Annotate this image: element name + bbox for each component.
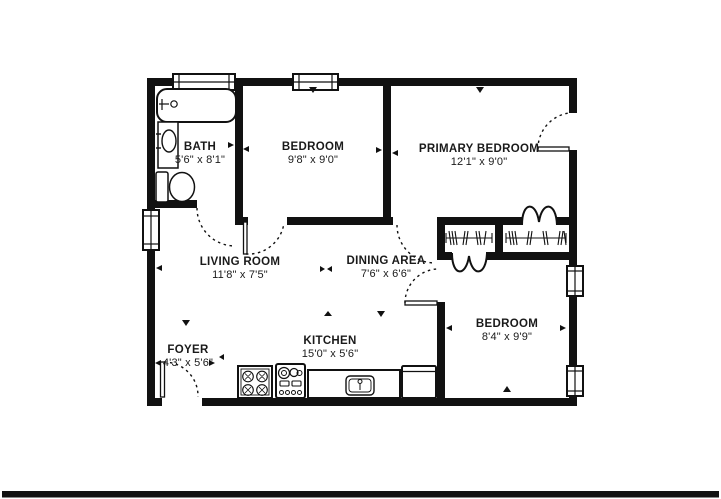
tick-bedroom-right-bottom [503, 386, 511, 392]
room-name: DINING AREA [347, 254, 426, 268]
wall-closet-top-right [557, 217, 569, 225]
door-arc-bedroom-top [246, 223, 284, 254]
wall-right-upper [569, 78, 577, 113]
door-panel-bedroom-top [244, 222, 248, 254]
window-top-bath [173, 74, 235, 90]
floorplan-canvas: BATH 5'6" x 8'1" BEDROOM 9'8" x 9'0" PRI… [0, 0, 721, 499]
room-dimensions: 12'1" x 9'0" [419, 156, 539, 170]
tick-divider-left [376, 147, 382, 153]
dimension-ticks-group [155, 87, 566, 392]
wall-closet-bottom-b [486, 252, 569, 260]
room-dimensions: 11'8" x 7'5" [200, 269, 281, 283]
room-label-foyer: FOYER 4'3" x 5'6" [163, 343, 213, 371]
floorplan-drawing [0, 0, 721, 499]
room-name: LIVING ROOM [200, 255, 281, 269]
bifold-door-closet-bedroom [452, 253, 487, 271]
tick-primary-top [476, 87, 484, 93]
oven-range-icon [276, 364, 305, 398]
tick-divider-right [392, 150, 398, 156]
toilet-icon [156, 172, 195, 202]
room-label-bath: BATH 5'6" x 8'1" [175, 140, 225, 168]
bifold-door-closet-primary [522, 207, 557, 225]
window-right-bedroom-upper [567, 266, 583, 296]
room-dimensions: 9'8" x 9'0" [282, 154, 344, 168]
door-arc-primary-bedroom [538, 113, 569, 149]
room-dimensions: 8'4" x 9'9" [476, 331, 538, 345]
door-panel-bedroom-right [405, 301, 437, 305]
wall-bedroom-right-left [437, 302, 445, 406]
wall-closet-top-left [437, 217, 522, 225]
tick-bath-wall-right [243, 146, 249, 152]
room-name: FOYER [163, 343, 213, 357]
room-name: PRIMARY BEDROOM [419, 142, 539, 156]
tick-kitchen-up [324, 311, 332, 316]
closets-group [446, 231, 566, 245]
tick-bedroom-right-right [560, 325, 566, 331]
room-dimensions: 15'0" x 5'6" [302, 348, 359, 362]
room-name: KITCHEN [302, 334, 359, 348]
room-dimensions: 7'6" x 6'6" [347, 268, 426, 282]
closet-rod-left-icon [446, 231, 492, 245]
room-label-dining-area: DINING AREA 7'6" x 6'6" [347, 254, 426, 282]
room-label-bedroom-right: BEDROOM 8'4" x 9'9" [476, 317, 538, 345]
wall-bedroom-bottom-b [287, 217, 393, 225]
wall-bottom-left-stub [147, 398, 162, 406]
window-right-bedroom-lower [567, 366, 583, 396]
room-name: BEDROOM [476, 317, 538, 331]
refrigerator-icon [402, 366, 436, 398]
room-dimensions: 5'6" x 8'1" [175, 154, 225, 168]
door-panel-primary-bedroom [538, 147, 569, 151]
wall-bedroom-primary-divider [383, 78, 391, 225]
tick-living-left [156, 265, 162, 271]
tick-foyer-left [155, 360, 161, 366]
bottom-bar [2, 491, 719, 498]
tick-living-dining-b [327, 266, 332, 272]
door-arc-bath [197, 208, 235, 246]
wall-bottom [202, 398, 577, 406]
window-left-living [143, 210, 159, 250]
tick-bedroom-right-left [446, 325, 452, 331]
tick-foyer-top [182, 320, 190, 326]
kitchen-fixtures-group [238, 364, 436, 398]
room-label-bedroom-top: BEDROOM 9'8" x 9'0" [282, 140, 344, 168]
wall-closet-bottom-a [437, 252, 452, 260]
room-label-living-room: LIVING ROOM 11'8" x 7'5" [200, 255, 281, 283]
kitchen-counter-sink-icon [308, 370, 400, 398]
room-name: BATH [175, 140, 225, 154]
bathtub-icon [157, 89, 236, 122]
closet-rod-right-icon [506, 231, 566, 245]
tick-foyer-marker [219, 354, 224, 360]
room-name: BEDROOM [282, 140, 344, 154]
room-dimensions: 4'3" x 5'6" [163, 357, 213, 371]
room-label-kitchen: KITCHEN 15'0" x 5'6" [302, 334, 359, 362]
tick-living-dining-a [320, 266, 325, 272]
tick-bath-wall-left [228, 142, 234, 148]
room-label-primary-bedroom: PRIMARY BEDROOM 12'1" x 9'0" [419, 142, 539, 170]
tick-kitchen-down [377, 311, 385, 317]
cooktop-icon [238, 366, 272, 398]
